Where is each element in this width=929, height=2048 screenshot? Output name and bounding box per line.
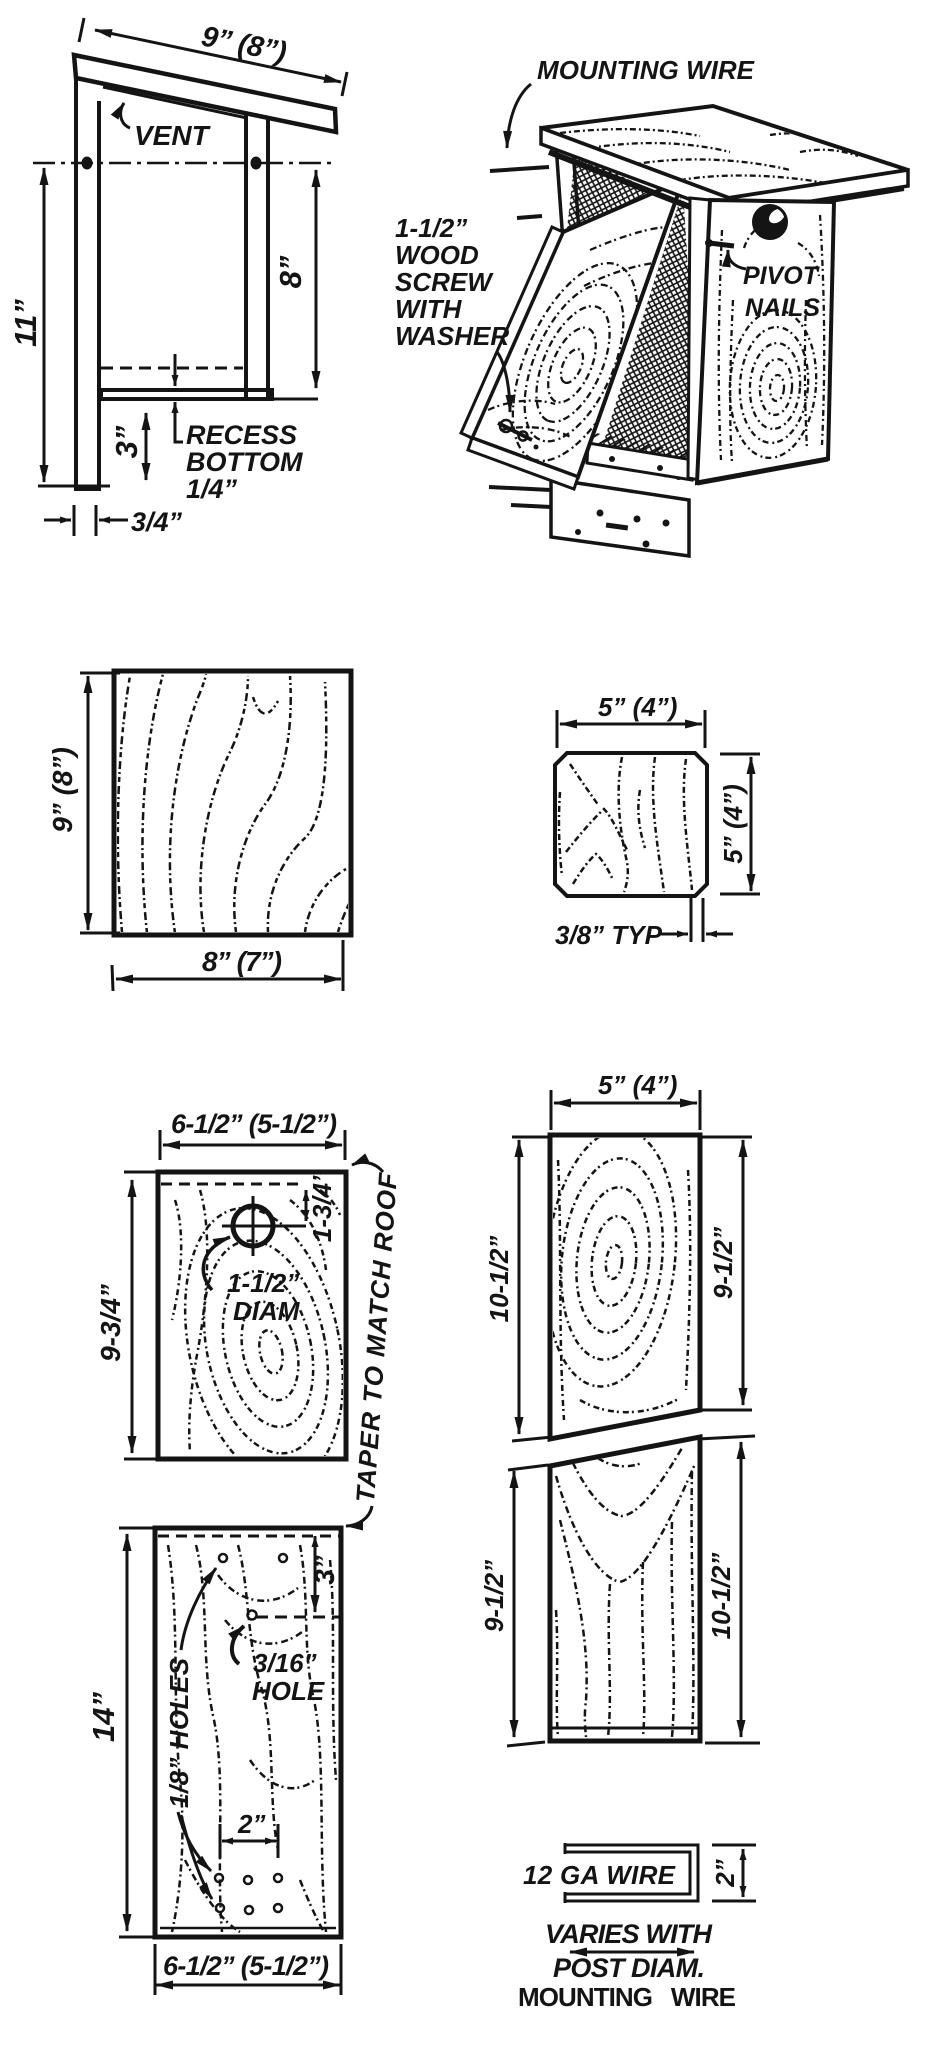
svg-text:5” (4”): 5” (4”) xyxy=(598,1070,677,1100)
svg-text:5” (4”): 5” (4”) xyxy=(718,784,748,863)
svg-text:MOUNTING WIRE: MOUNTING WIRE xyxy=(537,55,755,85)
svg-text:10-1/2”: 10-1/2” xyxy=(706,1553,736,1640)
svg-text:11”: 11” xyxy=(8,299,43,347)
svg-text:1/4”: 1/4” xyxy=(186,474,238,504)
svg-text:6-1/2” (5-1/2”): 6-1/2” (5-1/2”) xyxy=(171,1109,337,1139)
svg-text:3”: 3” xyxy=(309,1555,340,1585)
svg-text:9-1/2”: 9-1/2” xyxy=(479,1560,509,1632)
svg-text:1/8” HOLES: 1/8” HOLES xyxy=(164,1657,194,1808)
svg-text:2”: 2” xyxy=(710,1859,740,1887)
svg-text:WOOD: WOOD xyxy=(395,240,479,270)
svg-text:SCREW: SCREW xyxy=(395,267,494,297)
svg-text:9” (8”): 9” (8”) xyxy=(47,747,78,833)
svg-text:3”: 3” xyxy=(109,425,144,458)
svg-text:12 GA WIRE: 12 GA WIRE xyxy=(523,1860,676,1890)
svg-text:BOTTOM: BOTTOM xyxy=(186,447,303,477)
svg-text:6-1/2” (5-1/2”): 6-1/2” (5-1/2”) xyxy=(163,1951,329,1981)
svg-text:MOUNTING WIRE: MOUNTING WIRE xyxy=(518,1982,736,2012)
svg-text:3/4”: 3/4” xyxy=(131,507,183,537)
svg-text:9-3/4”: 9-3/4” xyxy=(95,1284,126,1362)
svg-text:WASHER: WASHER xyxy=(395,321,509,351)
svg-text:5” (4”): 5” (4”) xyxy=(598,692,677,722)
svg-text:2”: 2” xyxy=(237,1809,265,1839)
svg-text:10-1/2”: 10-1/2” xyxy=(484,1236,514,1323)
svg-text:14”: 14” xyxy=(86,1692,121,1742)
svg-text:9-1/2”: 9-1/2” xyxy=(708,1227,738,1299)
svg-text:RECESS: RECESS xyxy=(186,420,297,450)
svg-text:1-1/2”: 1-1/2” xyxy=(395,213,467,243)
svg-text:POST DIAM.: POST DIAM. xyxy=(553,1953,705,1983)
svg-text:8”: 8” xyxy=(273,255,308,288)
svg-text:VARIES WITH: VARIES WITH xyxy=(545,1919,713,1949)
svg-text:WITH: WITH xyxy=(395,294,463,324)
svg-text:8” (7”): 8” (7”) xyxy=(202,946,282,977)
svg-text:3/8” TYP: 3/8” TYP xyxy=(555,920,663,950)
svg-text:1-3/4”: 1-3/4” xyxy=(307,1170,337,1242)
svg-text:VENT: VENT xyxy=(134,120,212,151)
svg-text:DIAM: DIAM xyxy=(233,1296,301,1326)
svg-text:NAILS: NAILS xyxy=(745,294,820,322)
svg-text:PIVOT: PIVOT xyxy=(743,262,821,290)
